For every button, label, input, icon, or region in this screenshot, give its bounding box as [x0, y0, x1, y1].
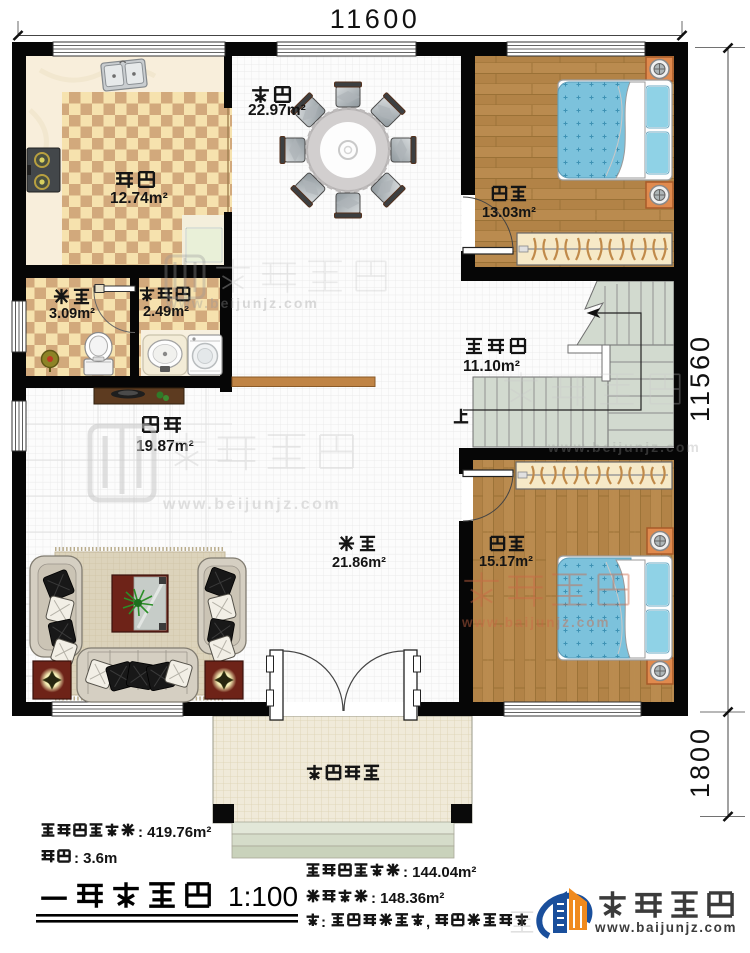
svg-text::: :	[321, 914, 326, 931]
svg-text:www.baijunjz.com: www.baijunjz.com	[594, 920, 737, 935]
svg-text:: 144.04m²: : 144.04m²	[403, 864, 476, 881]
svg-text:11.10m²: 11.10m²	[463, 358, 520, 375]
svg-text:1800: 1800	[685, 726, 715, 798]
svg-text:www.beijunjz.com: www.beijunjz.com	[547, 439, 701, 455]
svg-text:13.03m²: 13.03m²	[482, 205, 536, 221]
svg-text:11600: 11600	[330, 4, 421, 34]
svg-text:www.beijunjz.com: www.beijunjz.com	[162, 496, 341, 513]
svg-text:22.97m²: 22.97m²	[248, 102, 306, 119]
svg-text:: 3.6m: : 3.6m	[74, 850, 117, 867]
svg-text:www.beijunjz.com: www.beijunjz.com	[165, 295, 319, 311]
svg-text:www.baijunjz.com: www.baijunjz.com	[461, 615, 611, 630]
svg-text:21.86m²: 21.86m²	[332, 555, 386, 571]
svg-text:: 148.36m²: : 148.36m²	[371, 890, 444, 907]
svg-text:11560: 11560	[685, 334, 715, 422]
svg-text:3.09m²: 3.09m²	[49, 306, 95, 322]
svg-text:15.17m²: 15.17m²	[479, 554, 533, 570]
svg-text:: 419.76m²: : 419.76m²	[138, 824, 211, 841]
svg-text:,: ,	[426, 914, 430, 931]
svg-text:19.87m²: 19.87m²	[136, 438, 194, 455]
svg-text:12.74m²: 12.74m²	[110, 190, 168, 207]
svg-text:1:100: 1:100	[228, 881, 298, 912]
